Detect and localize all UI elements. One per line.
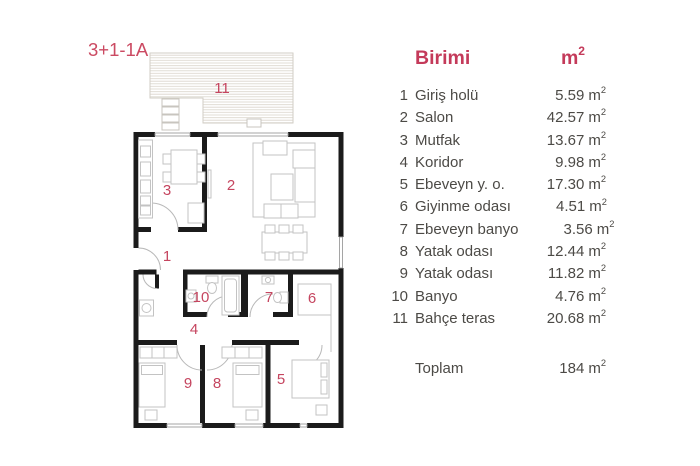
table-row: 10 Banyo 4.76m2 bbox=[390, 286, 606, 308]
room-name: Giriş holü bbox=[408, 85, 510, 107]
room-name: Yatak odası bbox=[408, 241, 510, 263]
table-row: 11 Bahçe teras 20.68m2 bbox=[390, 308, 606, 330]
room-label-4: 4 bbox=[190, 321, 198, 338]
room-area: 5.59m2 bbox=[510, 85, 606, 107]
room-no: 9 bbox=[390, 263, 408, 285]
table-row: 3 Mutfak 13.67m2 bbox=[390, 130, 606, 152]
room-label-6: 6 bbox=[308, 290, 316, 307]
table-row: 6 Giyinme odası 4.51m2 bbox=[390, 196, 606, 218]
plan-title: 3+1-1A bbox=[88, 39, 149, 60]
room-area: 9.98m2 bbox=[510, 152, 606, 174]
room-no: 6 bbox=[390, 196, 408, 218]
room-area: 3.56m2 bbox=[518, 219, 614, 241]
room-no: 3 bbox=[390, 130, 408, 152]
table-row: 8 Yatak odası 12.44m2 bbox=[390, 241, 606, 263]
room-area: 4.76m2 bbox=[510, 286, 606, 308]
table-rows: 1 Giriş holü 5.59m2 2 Salon 42.57m2 3 Mu… bbox=[390, 85, 606, 330]
room-name: Ebeveyn y. o. bbox=[408, 174, 510, 196]
room-no: 1 bbox=[390, 85, 408, 107]
room-no: 4 bbox=[390, 152, 408, 174]
table-row: 4 Koridor 9.98m2 bbox=[390, 152, 606, 174]
room-label-5: 5 bbox=[277, 371, 285, 388]
room-area: 12.44m2 bbox=[510, 241, 606, 263]
room-area: 4.51m2 bbox=[511, 196, 607, 218]
room-no: 7 bbox=[390, 219, 408, 241]
room-label-8: 8 bbox=[213, 375, 221, 392]
room-name: Giyinme odası bbox=[408, 196, 511, 218]
room-name: Salon bbox=[408, 107, 510, 129]
room-name: Ebeveyn banyo bbox=[408, 219, 518, 241]
total-row: Toplam 184m2 bbox=[390, 358, 606, 380]
table-row: 1 Giriş holü 5.59m2 bbox=[390, 85, 606, 107]
room-label-7: 7 bbox=[265, 289, 273, 306]
room-no: 10 bbox=[390, 286, 408, 308]
table-row: 9 Yatak odası 11.82m2 bbox=[390, 263, 606, 285]
room-name: Mutfak bbox=[408, 130, 510, 152]
room-label-2: 2 bbox=[227, 177, 235, 194]
room-no: 8 bbox=[390, 241, 408, 263]
total-area: 184m2 bbox=[510, 358, 606, 380]
room-no: 2 bbox=[390, 107, 408, 129]
room-name: Banyo bbox=[408, 286, 510, 308]
room-area: 13.67m2 bbox=[510, 130, 606, 152]
floor-plan: 3+1-1A bbox=[0, 0, 400, 466]
table-row: 2 Salon 42.57m2 bbox=[390, 107, 606, 129]
room-no: 11 bbox=[390, 308, 408, 330]
room-area: 11.82m2 bbox=[510, 263, 606, 285]
room-label-11: 11 bbox=[214, 80, 230, 97]
room-label-9: 9 bbox=[184, 375, 192, 392]
area-table: Birimi m2 1 Giriş holü 5.59m2 2 Salon 42… bbox=[390, 46, 606, 381]
header-area-label: m2 bbox=[510, 46, 606, 70]
room-name: Yatak odası bbox=[408, 263, 510, 285]
floor-plan-page: { "plan": { "title": "3+1-1A" }, "table"… bbox=[0, 0, 700, 466]
room-no: 5 bbox=[390, 174, 408, 196]
room-label-3: 3 bbox=[163, 182, 171, 199]
room-name: Koridor bbox=[408, 152, 510, 174]
table-header: Birimi m2 bbox=[390, 46, 606, 70]
room-area: 20.68m2 bbox=[510, 308, 606, 330]
room-name: Bahçe teras bbox=[408, 308, 510, 330]
room-label-1: 1 bbox=[163, 248, 171, 265]
table-row: 7 Ebeveyn banyo 3.56m2 bbox=[390, 219, 606, 241]
header-unit-label: Birimi bbox=[408, 46, 510, 70]
room-label-10: 10 bbox=[193, 289, 210, 306]
room-area: 17.30m2 bbox=[510, 174, 606, 196]
room-area: 42.57m2 bbox=[510, 107, 606, 129]
table-row: 5 Ebeveyn y. o. 17.30m2 bbox=[390, 174, 606, 196]
total-label: Toplam bbox=[408, 358, 510, 380]
